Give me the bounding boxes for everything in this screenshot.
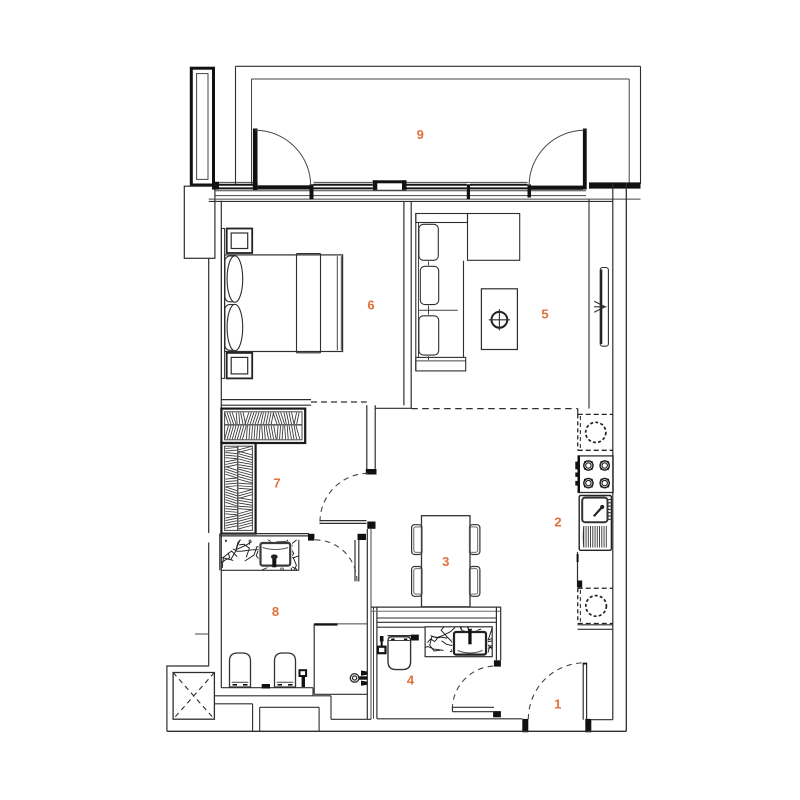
svg-text:5: 5 xyxy=(541,307,548,322)
svg-text:7: 7 xyxy=(273,476,280,491)
svg-text:1: 1 xyxy=(554,696,561,711)
svg-text:9: 9 xyxy=(417,127,424,142)
svg-text:2: 2 xyxy=(554,515,561,530)
svg-text:6: 6 xyxy=(367,298,374,313)
svg-text:4: 4 xyxy=(407,673,415,688)
svg-text:8: 8 xyxy=(272,604,279,619)
svg-text:3: 3 xyxy=(442,554,449,569)
